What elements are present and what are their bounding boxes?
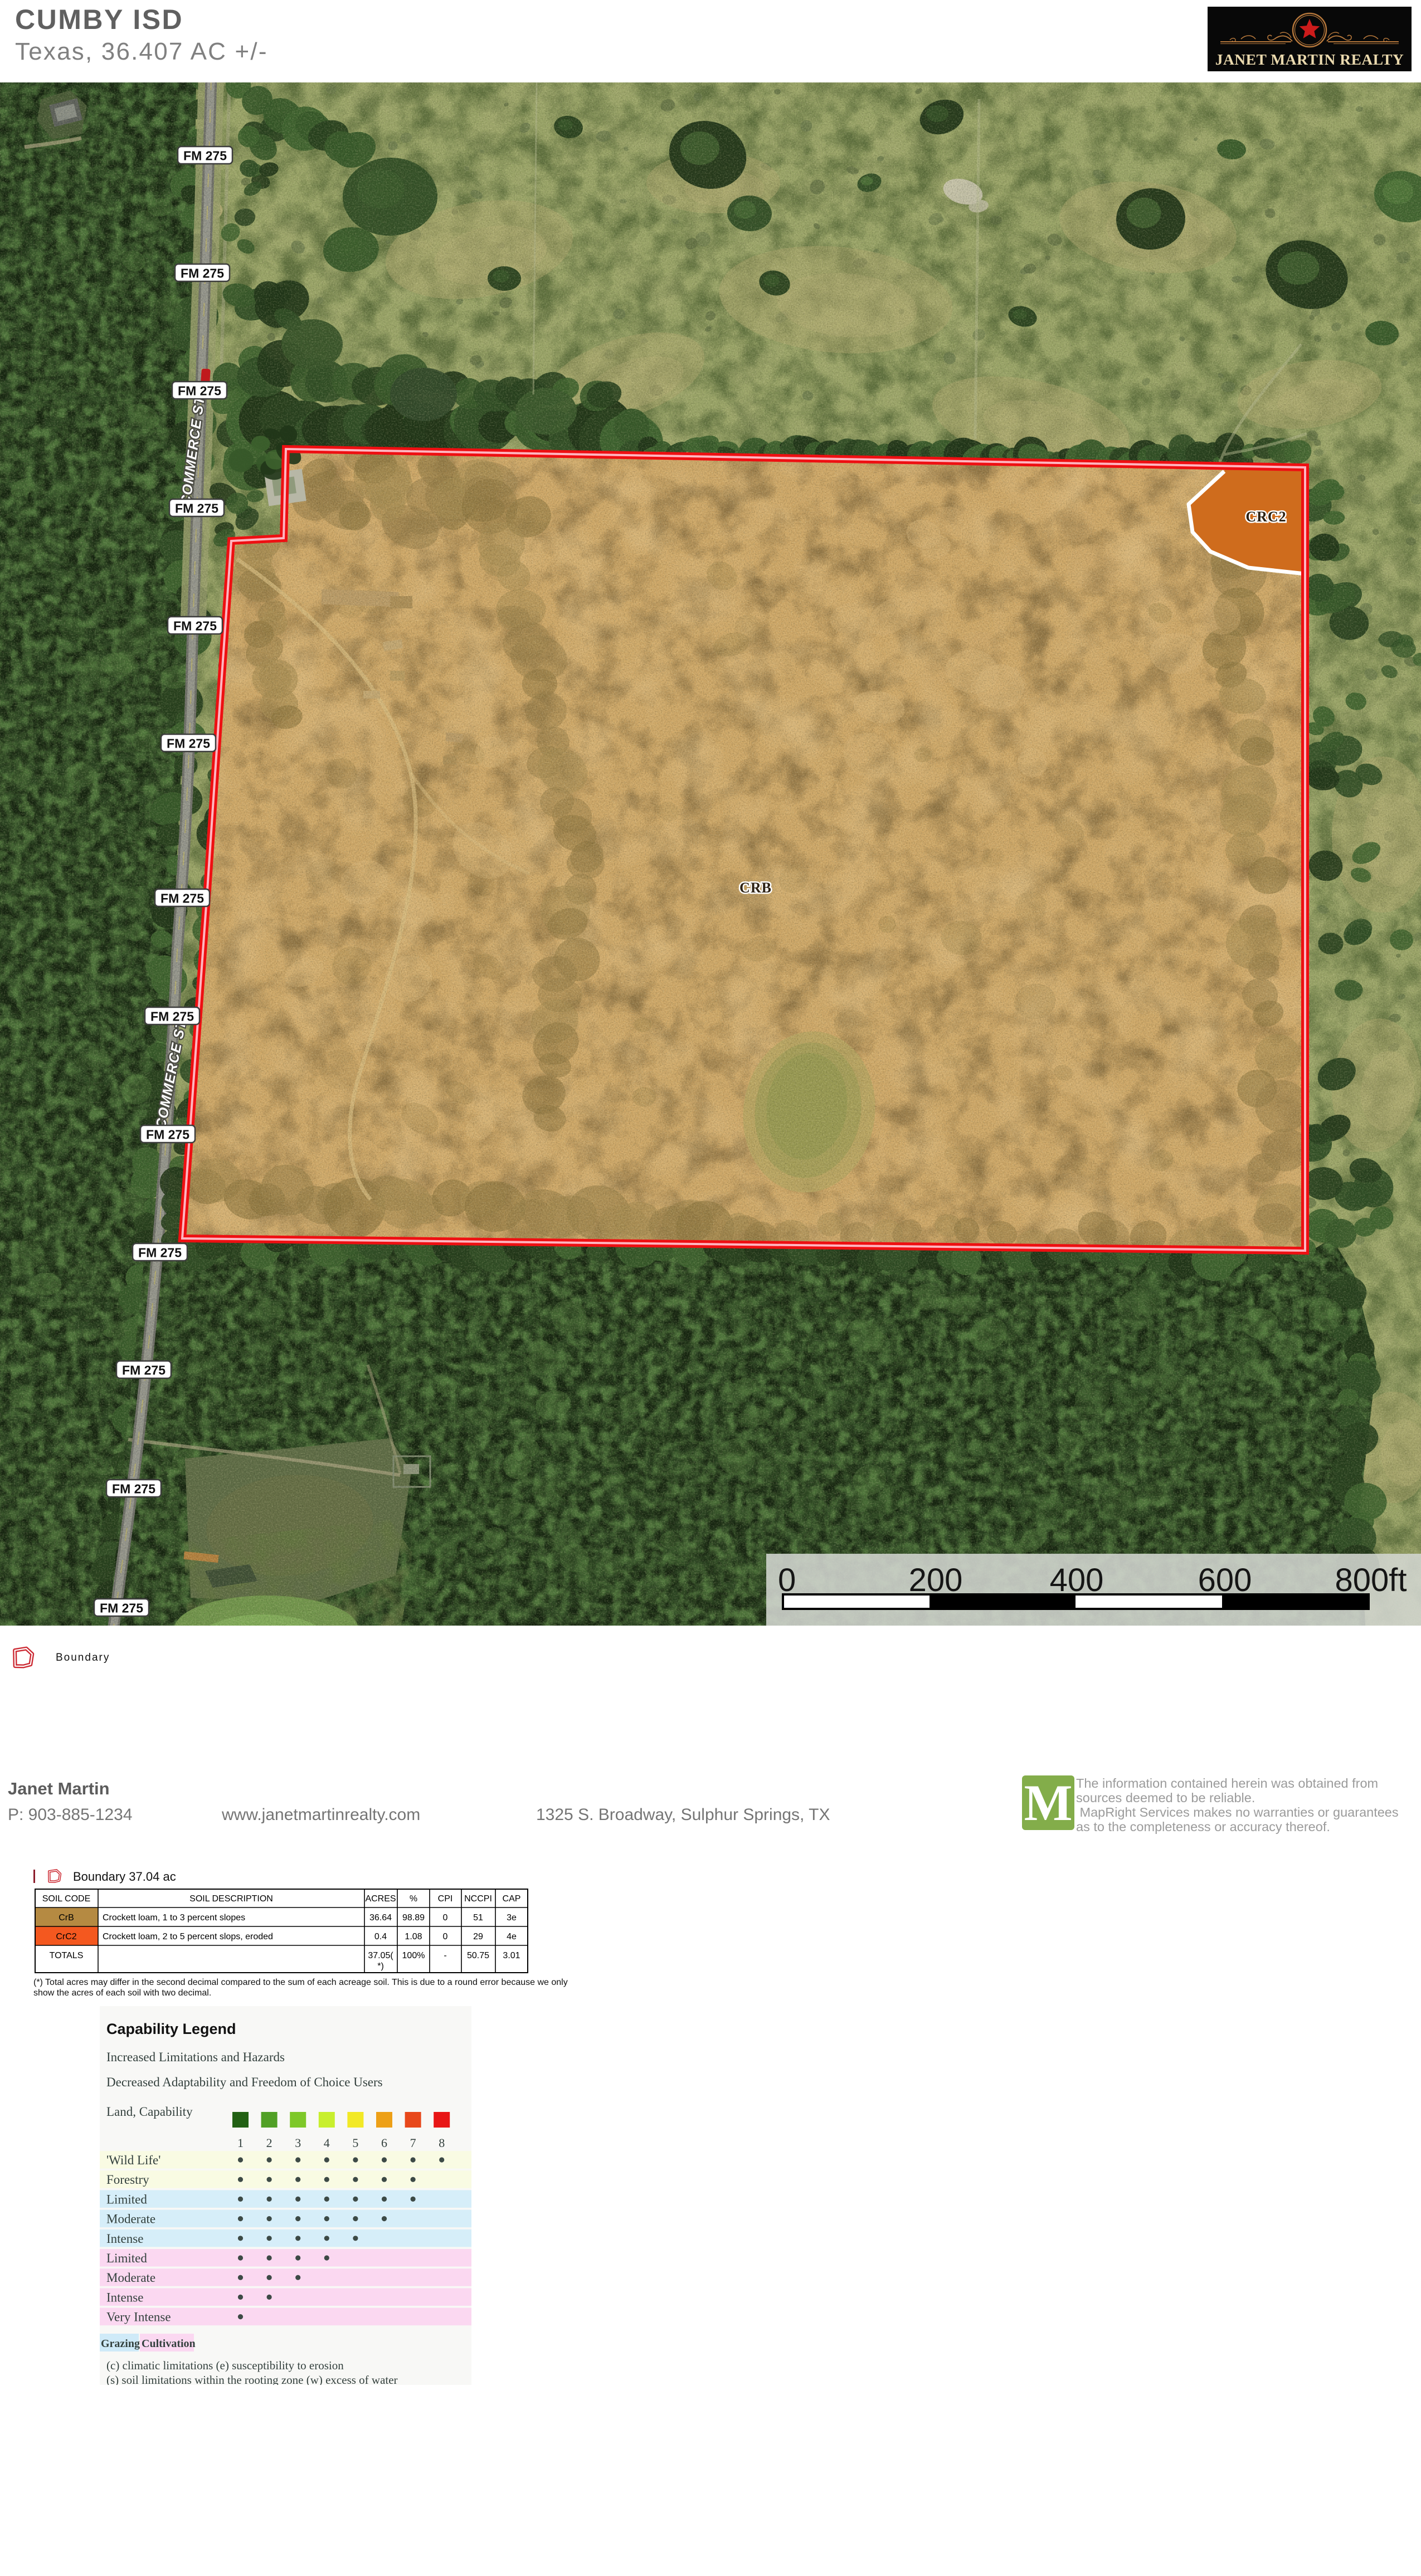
svg-text:FM 275: FM 275	[181, 266, 224, 281]
svg-text:FM 275: FM 275	[183, 149, 227, 163]
svg-text:Intense: Intense	[106, 2290, 143, 2304]
svg-text:FM 275: FM 275	[160, 891, 204, 906]
svg-text:FM 275: FM 275	[122, 1363, 166, 1378]
svg-text:29: 29	[473, 1932, 483, 1941]
svg-text:8: 8	[439, 2136, 445, 2150]
svg-text:2: 2	[266, 2136, 272, 2150]
svg-text:FM 275: FM 275	[138, 1246, 182, 1260]
svg-text:100%: 100%	[402, 1951, 425, 1960]
svg-text:*): *)	[377, 1962, 384, 1971]
svg-text:37.05(: 37.05(	[368, 1951, 393, 1960]
svg-text:CRB: CRB	[739, 880, 772, 896]
svg-text:CAP: CAP	[503, 1894, 521, 1904]
svg-text:FM 275: FM 275	[178, 384, 221, 398]
svg-text:6: 6	[381, 2136, 387, 2150]
svg-text:(s) soil limitations within th: (s) soil limitations within the rooting …	[106, 2373, 398, 2385]
svg-text:0.4: 0.4	[374, 1932, 387, 1941]
svg-text:36.64: 36.64	[369, 1913, 392, 1923]
svg-text:0: 0	[778, 1562, 796, 1598]
svg-text:200: 200	[909, 1562, 963, 1598]
svg-text:FM 275: FM 275	[167, 736, 210, 751]
svg-text:4e: 4e	[507, 1932, 517, 1941]
svg-text:400: 400	[1050, 1562, 1104, 1598]
svg-text:%: %	[410, 1894, 417, 1904]
svg-text:Intense: Intense	[106, 2232, 143, 2246]
svg-text:JANET MARTIN REALTY: JANET MARTIN REALTY	[1215, 51, 1404, 68]
svg-text:CPI: CPI	[438, 1894, 453, 1904]
svg-text:SOIL CODE: SOIL CODE	[42, 1894, 91, 1904]
svg-text:FM 275: FM 275	[175, 501, 218, 516]
svg-text:0: 0	[443, 1932, 448, 1941]
svg-text:1: 1	[237, 2136, 244, 2150]
svg-text:FM 275: FM 275	[146, 1128, 189, 1142]
svg-text:3e: 3e	[507, 1913, 517, 1923]
svg-text:ACRES: ACRES	[365, 1894, 396, 1904]
svg-text:SOIL DESCRIPTION: SOIL DESCRIPTION	[189, 1894, 273, 1904]
svg-text:600: 600	[1198, 1562, 1252, 1598]
svg-text:CrC2: CrC2	[56, 1932, 76, 1941]
svg-text:'Wild Life': 'Wild Life'	[106, 2153, 160, 2167]
svg-text:51: 51	[473, 1913, 483, 1923]
svg-text:Crockett loam, 2 to 5 percent: Crockett loam, 2 to 5 percent slops, ero…	[103, 1932, 273, 1941]
svg-text:CRC2: CRC2	[1245, 509, 1286, 525]
svg-text:Cultivation: Cultivation	[142, 2338, 196, 2350]
svg-text:50.75: 50.75	[467, 1951, 489, 1960]
svg-text:TOTALS: TOTALS	[50, 1951, 84, 1960]
svg-text:Very Intense: Very Intense	[106, 2310, 171, 2324]
svg-text:Limited: Limited	[106, 2251, 147, 2265]
svg-text:(c) climatic limitations (e) s: (c) climatic limitations (e) susceptibil…	[106, 2359, 344, 2372]
svg-text:FM 275: FM 275	[100, 1601, 143, 1616]
svg-text:7: 7	[410, 2136, 416, 2150]
svg-text:3.01: 3.01	[503, 1951, 520, 1960]
svg-text:Moderate: Moderate	[106, 2271, 155, 2285]
svg-text:Moderate: Moderate	[106, 2212, 155, 2226]
svg-text:1.08: 1.08	[405, 1932, 422, 1941]
svg-text:0: 0	[443, 1913, 448, 1923]
svg-text:FM 275: FM 275	[112, 1482, 155, 1496]
svg-text:CrB: CrB	[59, 1913, 74, 1923]
svg-text:Crockett loam, 1 to 3 percent: Crockett loam, 1 to 3 percent slopes	[103, 1913, 245, 1923]
svg-text:Grazing: Grazing	[101, 2338, 140, 2350]
svg-text:5: 5	[352, 2136, 358, 2150]
svg-text:FM 275: FM 275	[173, 619, 217, 633]
svg-text:3: 3	[295, 2136, 301, 2150]
svg-text:NCCPI: NCCPI	[464, 1894, 492, 1904]
svg-text:FM 275: FM 275	[150, 1009, 194, 1024]
svg-text:800ft: 800ft	[1335, 1562, 1407, 1598]
svg-text:-: -	[444, 1951, 446, 1960]
svg-text:Limited: Limited	[106, 2192, 147, 2206]
svg-text:Forestry: Forestry	[106, 2173, 149, 2187]
svg-text:4: 4	[324, 2136, 330, 2150]
svg-text:98.89: 98.89	[402, 1913, 425, 1923]
